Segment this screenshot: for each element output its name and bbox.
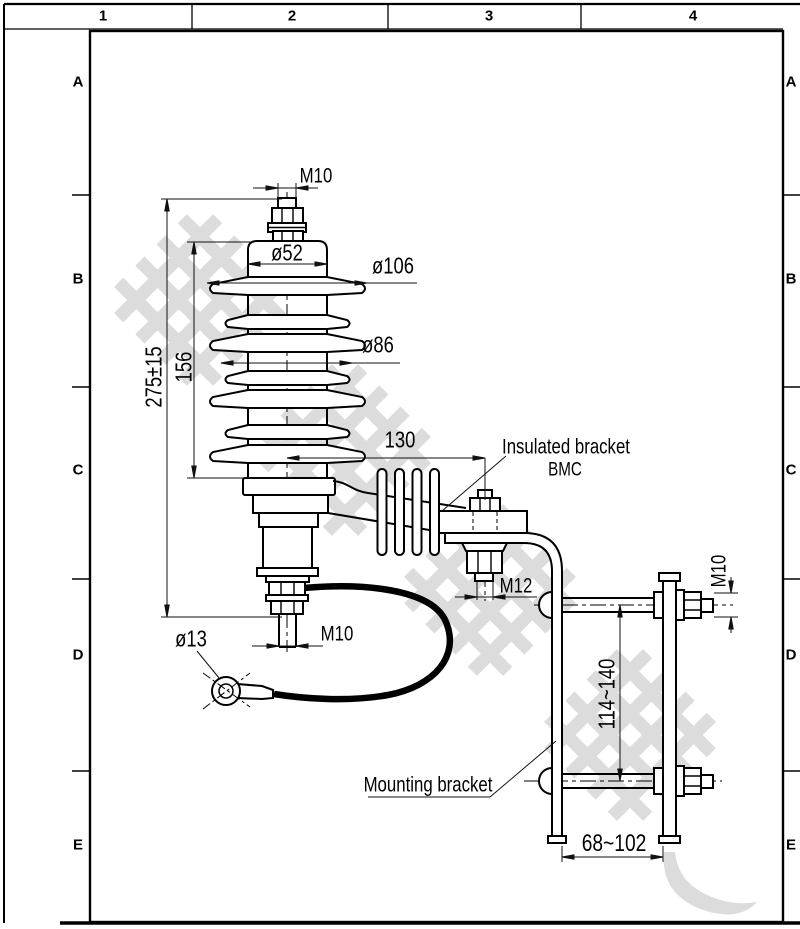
dim-top-stud-thread: M10: [300, 166, 333, 187]
dim-overall-height: 275±15: [143, 346, 166, 407]
zone-row-b-left: B: [73, 272, 84, 287]
zone-col-1: 1: [99, 9, 107, 24]
arrester-top-stud: [268, 198, 306, 243]
dim-bracket-offset: 130: [385, 429, 416, 452]
watermark-lattice: [101, 201, 757, 914]
arrester-bottom-stud: [266, 576, 309, 647]
drawing-sheet: 1 2 3 4 A B C D E A B C D E M10 ø52 ø106…: [0, 0, 800, 929]
zone-row-a-right: A: [786, 75, 797, 90]
dim-housing-height: 156: [173, 352, 196, 383]
dim-bottom-stud-thread: M10: [321, 624, 354, 645]
zone-row-e-right: E: [786, 838, 796, 853]
dim-lug-hole-diameter: ø13: [175, 628, 207, 651]
dim-clamp-opening-range: 68~102: [582, 832, 647, 856]
zone-col-3: 3: [485, 9, 493, 24]
zone-row-e-left: E: [73, 838, 83, 853]
dim-bolt-spacing-range: 114~140: [596, 659, 619, 730]
zone-row-c-right: C: [786, 463, 797, 478]
dim-bracket-bolt-thread: M12: [500, 576, 533, 597]
ring-terminal: [203, 673, 273, 709]
dim-cap-diameter: ø52: [271, 242, 303, 265]
zone-col-4: 4: [689, 9, 697, 24]
watermark-swoosh: [664, 852, 757, 914]
zone-row-d-left: D: [73, 648, 84, 663]
mounting-bracket-label: Mounting bracket: [364, 775, 493, 796]
insulated-bracket-material-label: BMC: [548, 461, 582, 480]
dim-clamp-bolt-thread: M10: [709, 555, 730, 588]
zone-row-b-right: B: [786, 272, 797, 287]
dim-small-shed-diameter: ø86: [362, 334, 394, 357]
zone-row-c-left: C: [73, 463, 84, 478]
insulated-bracket-ribs: [378, 469, 440, 555]
zone-row-d-right: D: [786, 648, 797, 663]
zone-row-a-left: A: [73, 75, 84, 90]
dim-large-shed-diameter: ø106: [372, 255, 414, 278]
insulated-bracket-label: Insulated bracket: [502, 437, 630, 458]
zone-col-2: 2: [288, 9, 296, 24]
